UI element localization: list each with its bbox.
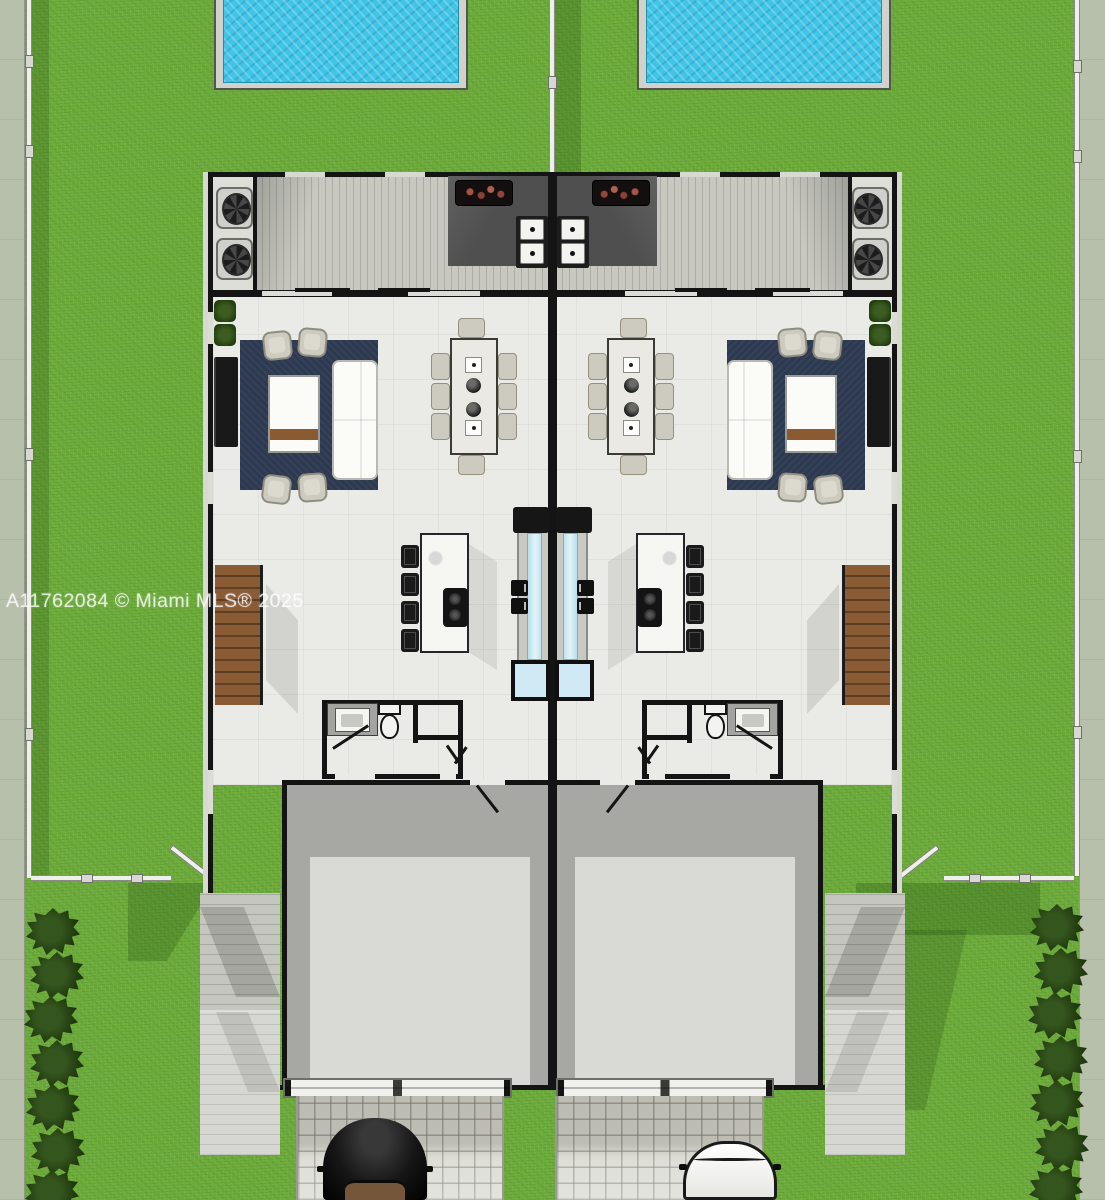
dining-chair <box>498 383 517 410</box>
window <box>208 770 213 814</box>
window <box>208 312 213 344</box>
door-opening <box>440 774 456 779</box>
burner <box>561 219 585 240</box>
ac-unit <box>216 238 253 280</box>
tv-console <box>867 357 891 447</box>
toilet-bowl <box>706 714 725 739</box>
side-mirror <box>425 1166 433 1172</box>
vanity-sink <box>727 703 778 736</box>
side-mirror <box>679 1164 687 1170</box>
deck-shadow <box>780 177 850 292</box>
bar-stool <box>401 601 419 624</box>
armchair <box>297 327 328 358</box>
hedge-bush <box>1034 948 1088 996</box>
window <box>892 472 897 504</box>
dining-table <box>607 338 655 455</box>
hedge-bush <box>24 996 78 1044</box>
centerpiece-bowl <box>466 402 481 417</box>
sliding-door-panel <box>675 288 727 292</box>
bar-stool <box>686 601 704 624</box>
kitchen-island <box>420 533 469 653</box>
glass-panel <box>527 533 542 660</box>
dining-chair <box>498 353 517 380</box>
built-in-appliance <box>511 598 528 614</box>
property-fence-right <box>1074 0 1080 876</box>
side-mirror <box>773 1164 781 1170</box>
centerpiece-bowl <box>466 378 481 393</box>
hedge-bush <box>31 1128 85 1176</box>
cooktop <box>443 588 468 627</box>
dining-table <box>450 338 498 455</box>
dining-chair <box>620 455 647 475</box>
bbq-grill <box>592 180 650 206</box>
door-opening <box>649 774 665 779</box>
bar-stool <box>401 545 419 568</box>
island-shadow <box>469 544 497 670</box>
toilet-bowl <box>380 714 399 739</box>
place-setting <box>623 357 640 373</box>
window <box>780 172 820 177</box>
bbq-grill <box>455 180 513 206</box>
backyard-divider-fence <box>549 0 555 174</box>
windshield-trim <box>694 1158 766 1161</box>
hedge-row-right <box>1022 894 1086 1200</box>
dining-chair <box>431 353 450 380</box>
place-setting <box>465 357 482 373</box>
bar-stool <box>686 629 704 652</box>
armchair <box>262 330 294 362</box>
window <box>892 312 897 344</box>
sofa <box>332 360 378 480</box>
side-mirror <box>317 1166 325 1172</box>
sofa <box>727 360 773 480</box>
burner <box>561 243 585 264</box>
closet-wall <box>647 735 687 740</box>
window <box>208 472 213 504</box>
hedge-row-left <box>18 898 82 1200</box>
island-shadow <box>608 544 636 670</box>
garage-parking-pad <box>575 857 795 1085</box>
entry-glass <box>511 660 550 701</box>
mls-watermark: A11762084 © Miami MLS® 2025 <box>6 590 304 613</box>
site-plan: A11762084 © Miami MLS® 2025 <box>0 0 1105 1200</box>
door-opening <box>730 774 770 779</box>
tall-cabinet <box>556 507 592 533</box>
armchair <box>297 472 328 503</box>
dining-chair <box>431 413 450 440</box>
tall-cabinet <box>513 507 549 533</box>
fence-shadow-center <box>555 0 581 173</box>
dining-chair <box>655 353 674 380</box>
glass-panel <box>563 533 578 660</box>
hedge-bush <box>30 952 84 1000</box>
hedge-bush <box>30 1040 84 1088</box>
window <box>285 172 325 177</box>
window <box>385 172 425 177</box>
hedge-bush <box>1030 904 1084 952</box>
coffee-table-shelf <box>270 429 318 440</box>
sliding-door-panel <box>295 288 350 292</box>
built-in-appliance <box>511 580 528 596</box>
vanity-sink <box>327 703 378 736</box>
coffee-table <box>785 375 837 453</box>
closet-wall <box>418 735 458 740</box>
hedge-bush <box>1035 1124 1089 1172</box>
garage-entry-opening <box>600 780 635 785</box>
armchair <box>260 473 292 505</box>
windshield <box>345 1180 405 1200</box>
bar-stool <box>401 573 419 596</box>
centerpiece-bowl <box>624 402 639 417</box>
hedge-bush <box>1028 992 1082 1040</box>
toilet <box>704 703 727 741</box>
outdoor-burners <box>557 216 589 268</box>
ac-unit <box>216 187 253 229</box>
dining-chair <box>655 413 674 440</box>
burner <box>520 243 544 264</box>
plant <box>214 324 236 346</box>
property-fence-left <box>26 0 32 878</box>
ac-unit <box>852 187 889 229</box>
built-in-appliance <box>577 580 594 596</box>
pool-water <box>223 0 459 83</box>
fence-shadow-left <box>31 0 49 876</box>
entry-glass <box>555 660 594 701</box>
cooktop <box>637 588 662 627</box>
pool-right <box>637 0 891 90</box>
unit-right <box>552 172 905 1162</box>
dining-chair <box>588 353 607 380</box>
side-fence-right <box>944 875 1074 881</box>
pool-water <box>646 0 882 83</box>
window <box>892 770 897 814</box>
garage-entry-opening <box>470 780 505 785</box>
hedge-bush <box>26 1084 80 1132</box>
garage-door-right <box>556 1078 774 1098</box>
dining-chair <box>458 318 485 338</box>
dining-chair <box>588 383 607 410</box>
dining-chair <box>655 383 674 410</box>
window <box>680 172 720 177</box>
toilet <box>378 703 401 741</box>
pool-left <box>214 0 468 90</box>
bar-stool <box>686 573 704 596</box>
armchair <box>812 473 844 505</box>
deck-shadow <box>255 177 325 292</box>
kitchen-island <box>636 533 685 653</box>
staircase <box>215 565 263 705</box>
dining-chair <box>588 413 607 440</box>
armchair <box>777 472 808 503</box>
sliding-door-panel <box>378 288 430 292</box>
hedge-bush <box>26 908 80 956</box>
bar-stool <box>686 545 704 568</box>
house-shadow-right-wedge <box>897 930 967 1110</box>
place-setting <box>623 420 640 436</box>
side-fence-left <box>31 875 171 881</box>
bar-stool <box>401 629 419 652</box>
unit-left <box>200 172 553 1162</box>
armchair <box>812 330 844 362</box>
tv-console <box>214 357 238 447</box>
garage-door-left <box>283 1078 512 1098</box>
staircase <box>842 565 890 705</box>
hedge-bush <box>1030 1080 1084 1128</box>
burner <box>520 219 544 240</box>
dining-chair <box>431 383 450 410</box>
door-opening <box>335 774 375 779</box>
armchair <box>777 327 808 358</box>
hedge-bush <box>25 1170 79 1200</box>
coffee-table-shelf <box>787 429 835 440</box>
ac-unit <box>852 238 889 280</box>
built-in-appliance <box>577 598 594 614</box>
dining-chair <box>458 455 485 475</box>
bath-wall <box>687 705 692 743</box>
place-setting <box>465 420 482 436</box>
plant <box>869 324 891 346</box>
outdoor-burners <box>516 216 548 268</box>
hedge-bush <box>1034 1036 1088 1084</box>
coffee-table <box>268 375 320 453</box>
dining-chair <box>498 413 517 440</box>
centerpiece-bowl <box>624 378 639 393</box>
plant <box>869 300 891 322</box>
garage-parking-pad <box>310 857 530 1085</box>
dining-chair <box>620 318 647 338</box>
plant <box>214 300 236 322</box>
hedge-bush <box>1029 1166 1083 1200</box>
sliding-door-panel <box>755 288 810 292</box>
